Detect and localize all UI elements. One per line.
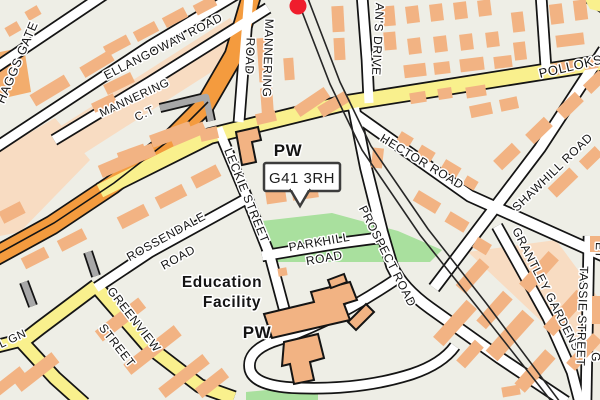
label-pw-south: PW [243,323,272,342]
label-education-facility-line2: Facility [203,294,261,311]
label-g-fragment: G [589,352,600,362]
location-marker-icon[interactable] [290,0,307,15]
label-ans-drive: AN'S DRIVE [369,2,387,76]
label-mannering-road-line1: MANNERING [260,19,277,98]
landmark-building [282,334,324,384]
map-viewport[interactable]: HAGGS GATEELLANGOWAN ROADMANNERINGROADMA… [0,0,600,400]
label-education-facility-line1: Education [182,274,262,291]
postcode-text: G41 3RH [269,170,335,187]
red-dot-marker[interactable] [290,0,307,15]
street-map-canvas[interactable]: HAGGS GATEELLANGOWAN ROADMANNERINGROADMA… [0,0,600,400]
label-et-fragment: ET [592,242,600,259]
label-mannering-road-line2: ROAD [242,37,257,75]
label-hector-road: HECTOR ROAD [378,131,467,192]
label-pw-north: PW [274,141,303,160]
